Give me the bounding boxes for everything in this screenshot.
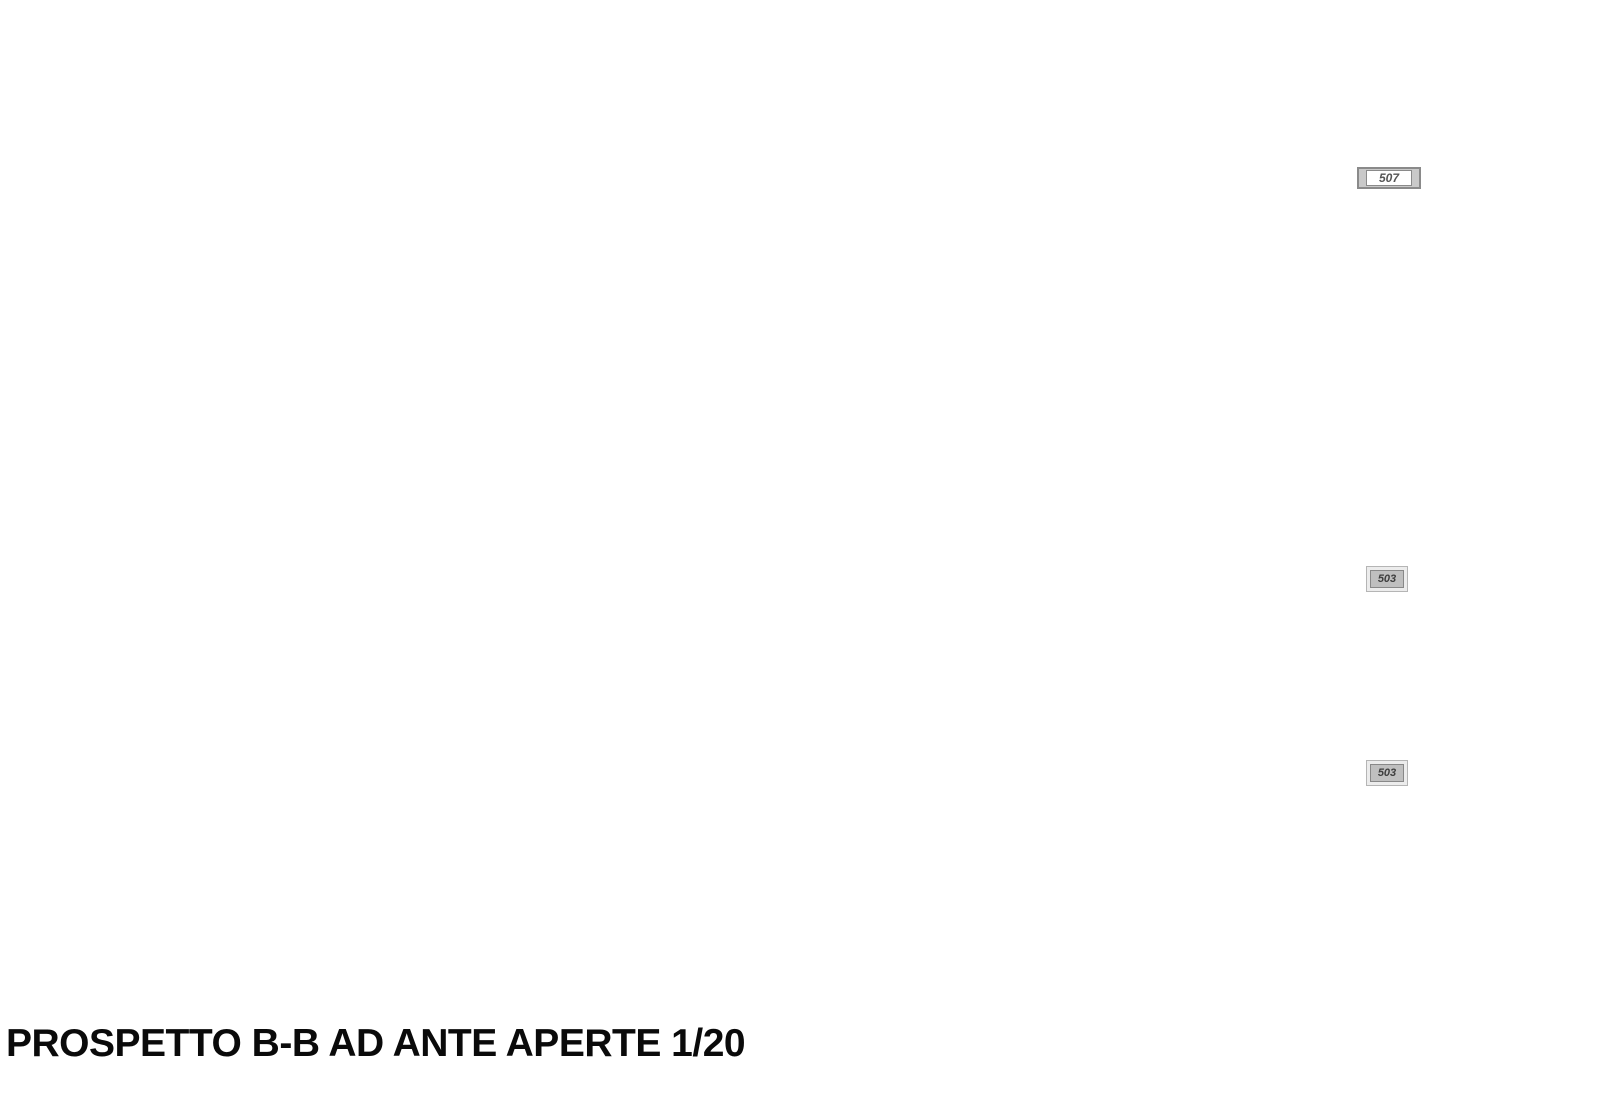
component-tag-507: 507	[1357, 167, 1421, 189]
drawing-canvas: PROSPETTO B-B AD ANTE APERTE 1/20 507 50…	[0, 0, 1610, 1101]
component-tag-503-lower: 503	[1366, 760, 1408, 786]
tag-label: 503	[1370, 570, 1404, 588]
tag-label: 507	[1366, 170, 1412, 186]
drawing-title: PROSPETTO B-B AD ANTE APERTE 1/20	[6, 1022, 745, 1066]
tag-label: 503	[1370, 764, 1404, 782]
component-tag-503-upper: 503	[1366, 566, 1408, 592]
